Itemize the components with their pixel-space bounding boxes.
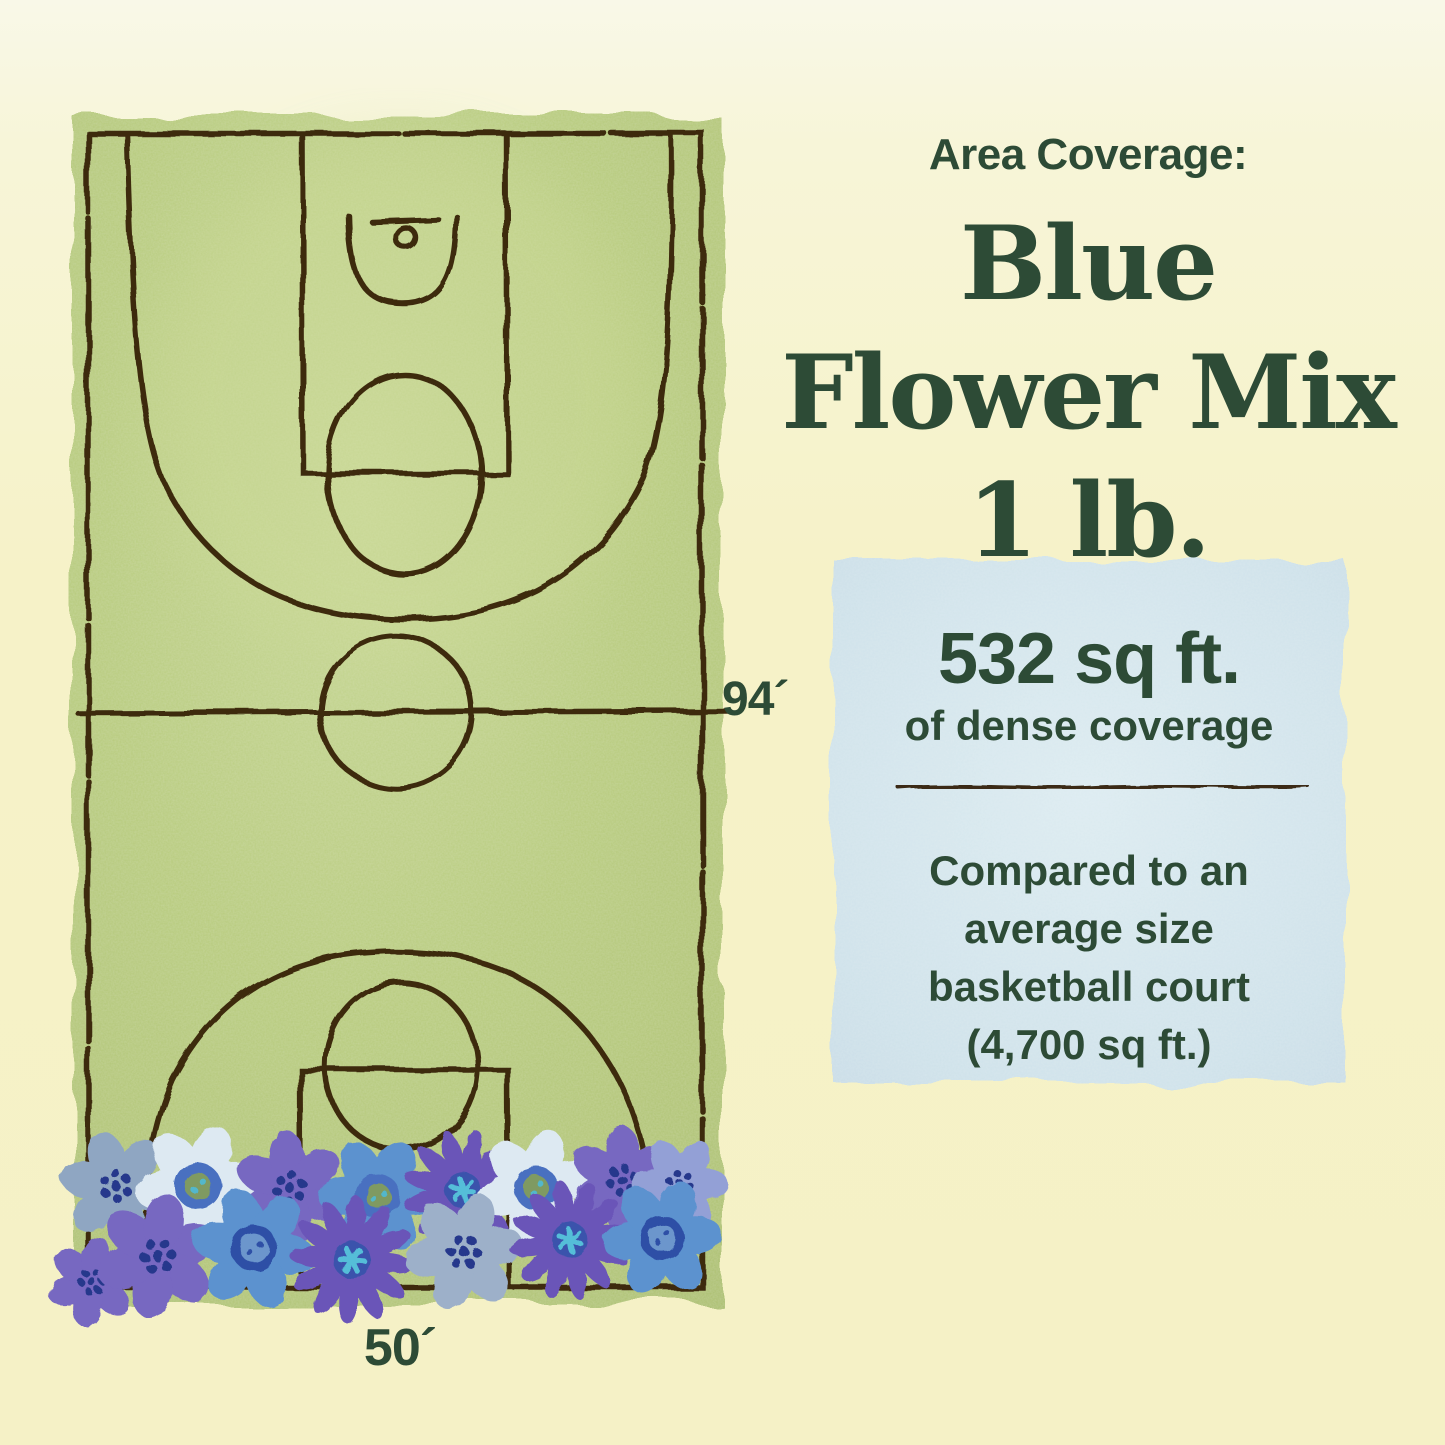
coverage-comparison: Compared to an average size basketball c… (833, 842, 1345, 1074)
coverage-amount-caption: of dense coverage (833, 702, 1345, 750)
infographic-canvas: 94´ 50´ Area Coverage: Blue Flower Mix 1… (0, 0, 1445, 1445)
product-title-line: Flower Mix (781, 333, 1395, 453)
area-coverage-heading: Area Coverage: (770, 130, 1406, 180)
basketball-court-illustration (27, 117, 728, 1347)
court-width-label: 50´ (300, 1318, 500, 1378)
coverage-comparison-line: average size (833, 900, 1345, 958)
coverage-comparison-line: Compared to an (833, 842, 1345, 900)
half-court-line (78, 711, 728, 713)
product-title: Blue Flower Mix 1 lb. (770, 200, 1406, 586)
coverage-amount: 532 sq ft. (833, 618, 1345, 700)
court-length-label: 94´ (722, 672, 842, 727)
coverage-comparison-line: (4,700 sq ft.) (833, 1016, 1345, 1074)
coverage-box: 532 sq ft. of dense coverage Compared to… (833, 560, 1345, 1082)
top-backboard (371, 219, 438, 221)
product-title-line: Blue (960, 204, 1216, 324)
coverage-comparison-line: basketball court (833, 958, 1345, 1016)
